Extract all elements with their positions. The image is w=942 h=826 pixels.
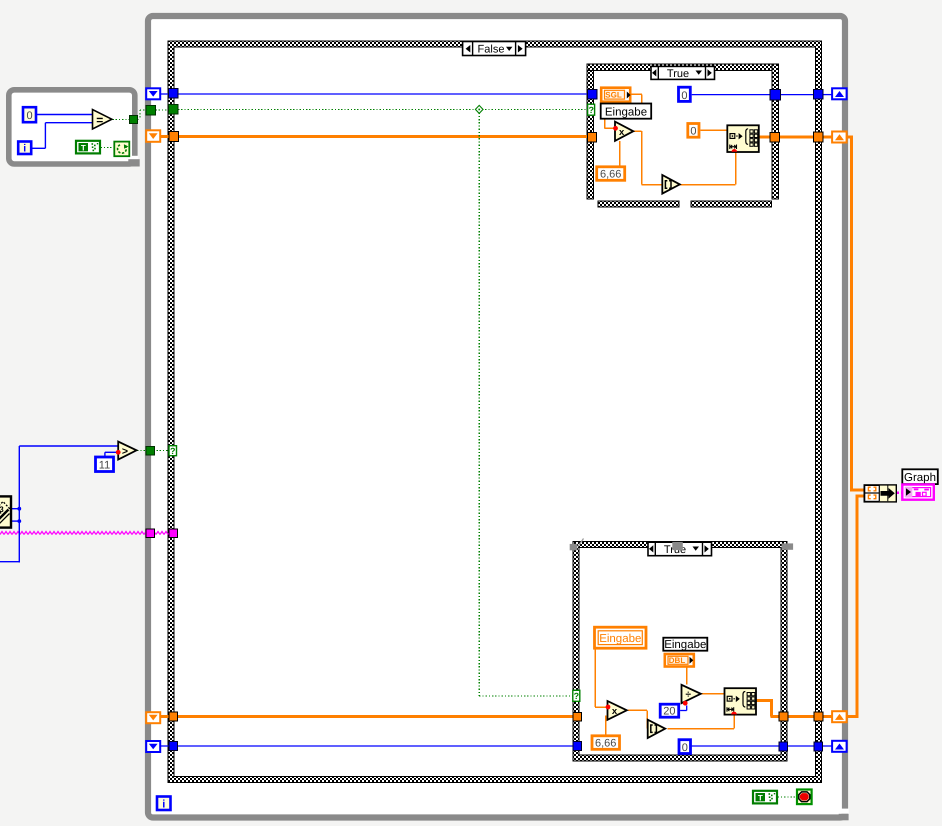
svg-text:20: 20 (663, 706, 675, 718)
svg-text:x: x (619, 127, 625, 138)
svg-text:0: 0 (26, 110, 32, 122)
svg-text:Eingabe: Eingabe (599, 633, 641, 645)
svg-text:3: 3 (0, 505, 4, 514)
svg-text:÷: ÷ (686, 689, 692, 700)
svg-text:>: > (122, 445, 128, 457)
svg-text:?: ? (574, 691, 580, 701)
svg-text:6,66: 6,66 (595, 738, 616, 750)
svg-text:i: i (23, 143, 26, 155)
svg-text:x: x (612, 706, 618, 717)
svg-text:0: 0 (682, 742, 688, 754)
svg-text:?: ? (588, 105, 594, 115)
svg-text:False: False (478, 44, 505, 56)
svg-text:11: 11 (99, 460, 110, 472)
svg-text:Eingabe: Eingabe (664, 639, 706, 651)
svg-text:=: = (96, 113, 103, 127)
svg-text:True: True (667, 68, 689, 80)
svg-text:6,66: 6,66 (600, 169, 621, 181)
svg-text:0: 0 (681, 90, 687, 102)
svg-text:?: ? (170, 446, 176, 456)
svg-text:T: T (758, 793, 763, 802)
svg-text:Eingabe: Eingabe (605, 106, 647, 118)
svg-text:0: 0 (690, 126, 696, 138)
svg-text:T: T (81, 143, 86, 152)
svg-text:SGL: SGL (605, 91, 622, 100)
svg-text:i: i (162, 798, 165, 810)
svg-text:DBL: DBL (669, 656, 686, 665)
svg-text:Graph: Graph (904, 472, 936, 484)
